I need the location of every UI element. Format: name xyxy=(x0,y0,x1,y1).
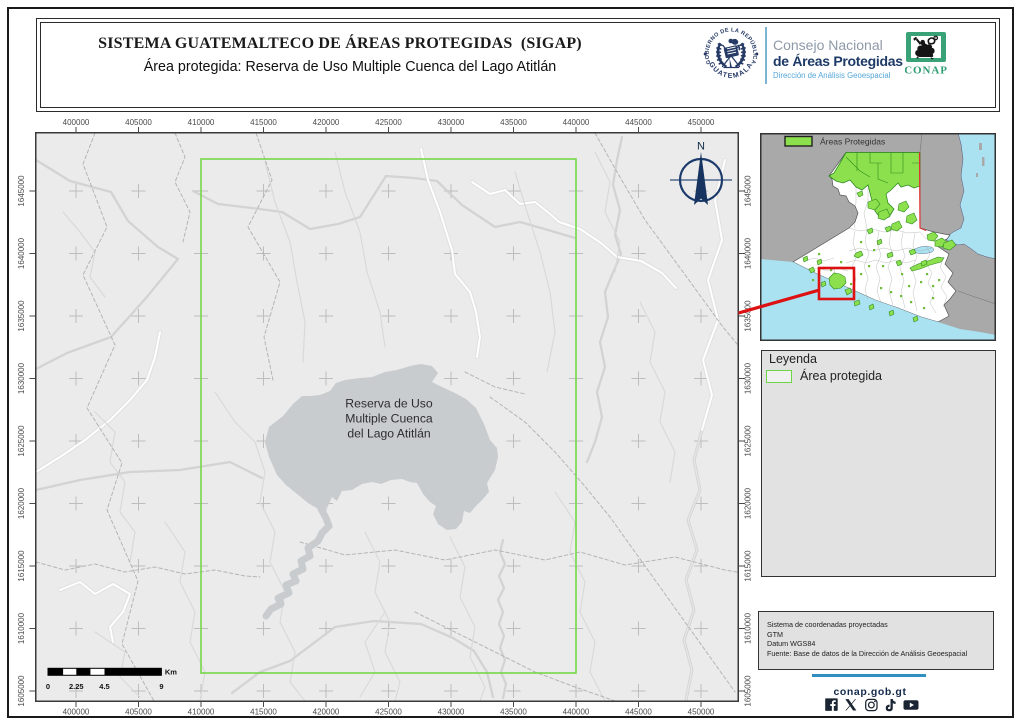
svg-text:1630000: 1630000 xyxy=(744,362,753,394)
svg-text:420000: 420000 xyxy=(313,118,340,127)
svg-text:445000: 445000 xyxy=(625,708,652,717)
svg-text:440000: 440000 xyxy=(563,708,590,717)
svg-text:1635000: 1635000 xyxy=(17,300,26,332)
svg-text:435000: 435000 xyxy=(500,708,527,717)
svg-text:1635000: 1635000 xyxy=(744,300,753,332)
svg-text:1625000: 1625000 xyxy=(744,425,753,457)
svg-text:1605000: 1605000 xyxy=(17,675,26,707)
svg-text:450000: 450000 xyxy=(688,118,715,127)
svg-text:420000: 420000 xyxy=(313,708,340,717)
svg-text:400000: 400000 xyxy=(63,118,90,127)
svg-text:415000: 415000 xyxy=(250,118,277,127)
svg-text:430000: 430000 xyxy=(438,708,465,717)
svg-text:1640000: 1640000 xyxy=(17,237,26,269)
svg-text:1615000: 1615000 xyxy=(744,550,753,582)
svg-text:1610000: 1610000 xyxy=(17,612,26,644)
svg-text:405000: 405000 xyxy=(125,708,152,717)
svg-text:430000: 430000 xyxy=(438,118,465,127)
svg-text:1630000: 1630000 xyxy=(17,362,26,394)
svg-text:415000: 415000 xyxy=(250,708,277,717)
svg-text:1610000: 1610000 xyxy=(744,612,753,644)
svg-text:1640000: 1640000 xyxy=(744,237,753,269)
svg-text:450000: 450000 xyxy=(688,708,715,717)
svg-text:410000: 410000 xyxy=(188,708,215,717)
svg-text:1645000: 1645000 xyxy=(744,175,753,207)
svg-text:410000: 410000 xyxy=(188,118,215,127)
svg-text:1620000: 1620000 xyxy=(17,487,26,519)
svg-text:1645000: 1645000 xyxy=(17,175,26,207)
svg-text:445000: 445000 xyxy=(625,118,652,127)
svg-text:1625000: 1625000 xyxy=(17,425,26,457)
svg-text:1605000: 1605000 xyxy=(744,675,753,707)
svg-text:1620000: 1620000 xyxy=(744,487,753,519)
svg-text:400000: 400000 xyxy=(63,708,90,717)
svg-text:435000: 435000 xyxy=(500,118,527,127)
svg-text:440000: 440000 xyxy=(563,118,590,127)
svg-text:405000: 405000 xyxy=(125,118,152,127)
svg-text:425000: 425000 xyxy=(375,118,402,127)
svg-text:1615000: 1615000 xyxy=(17,550,26,582)
svg-text:425000: 425000 xyxy=(375,708,402,717)
